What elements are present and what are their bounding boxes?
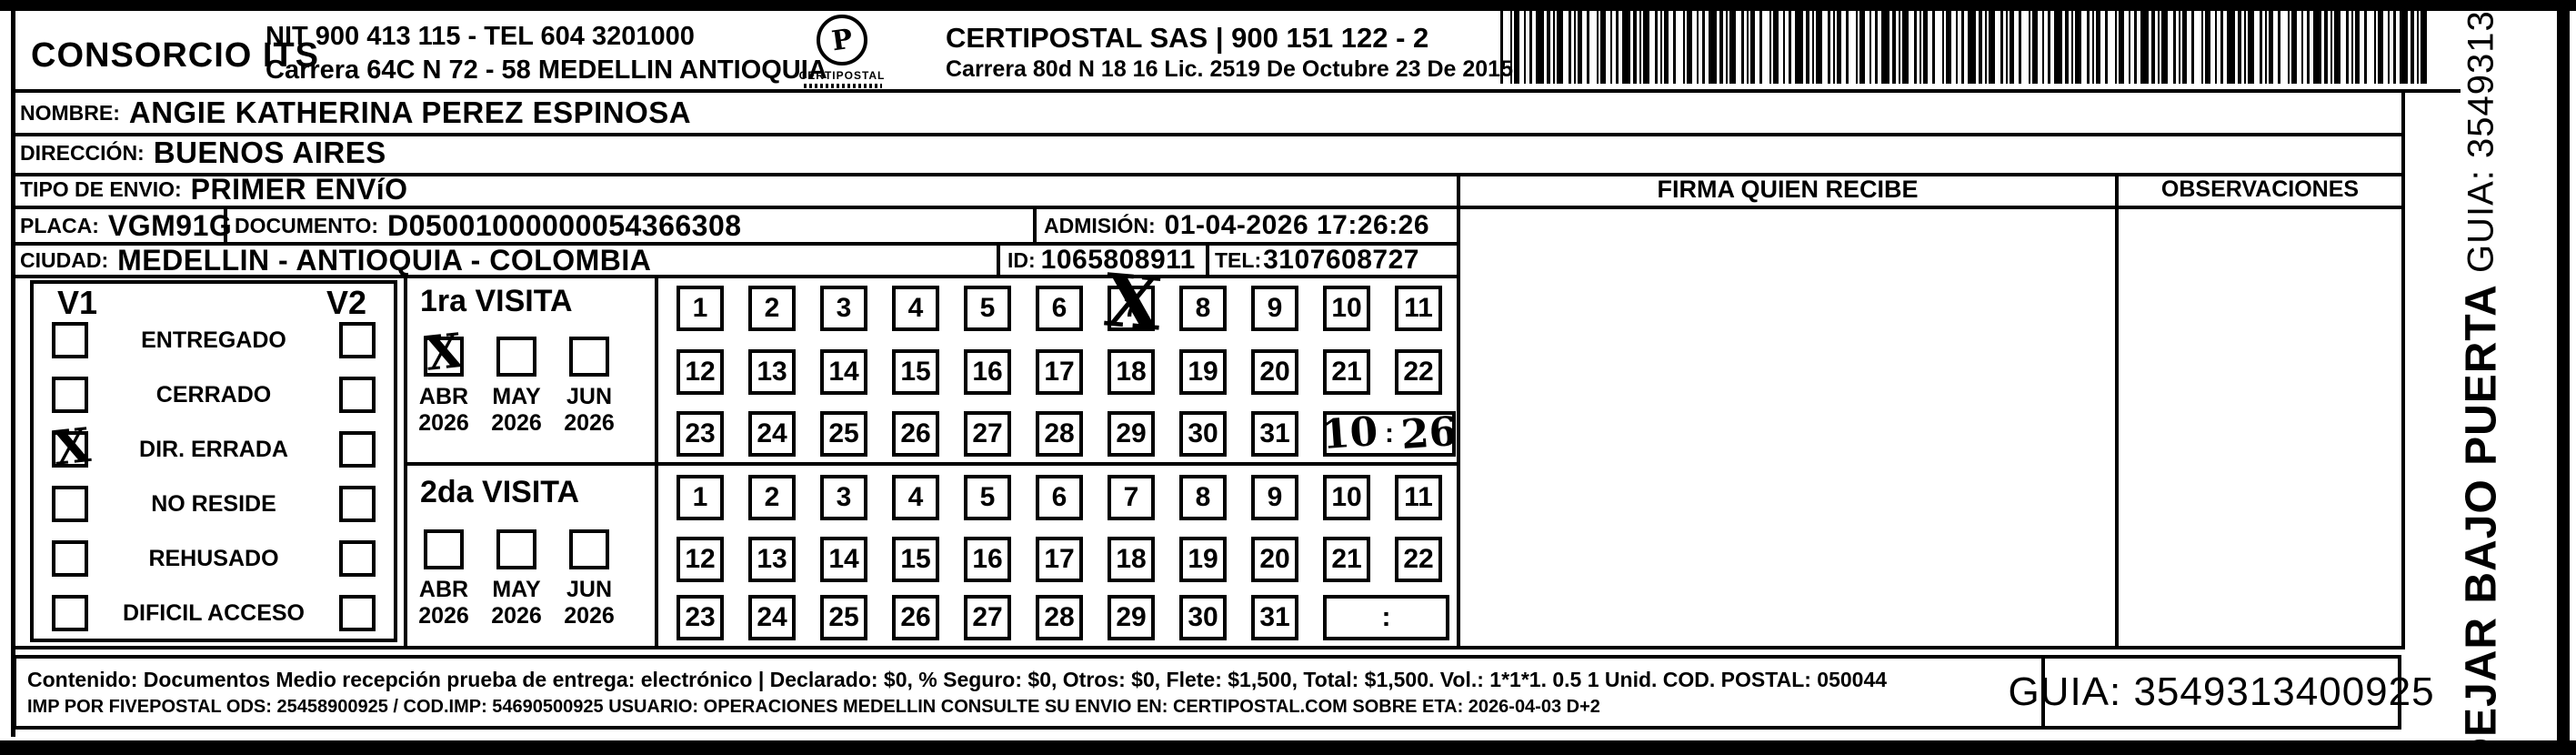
- divider: [1033, 209, 1037, 242]
- month-checkbox: [496, 529, 536, 569]
- day-cell: 30: [1179, 595, 1227, 640]
- time-box: 10:26: [1323, 411, 1456, 457]
- barcode-bar: [2393, 11, 2396, 84]
- day-number: 8: [1196, 482, 1211, 513]
- logo-tagline-illegible: [804, 84, 882, 88]
- barcode-bar: [2421, 11, 2427, 84]
- day-number: 25: [828, 602, 858, 633]
- barcode-bar: [1773, 11, 1779, 84]
- day-number: 19: [1188, 544, 1218, 575]
- month-checkbox: [496, 337, 536, 377]
- ciudad-value: MEDELLIN - ANTIOQUIA - COLOMBIA: [117, 244, 651, 277]
- day-row: 1234567891011: [660, 475, 1457, 520]
- handwritten-x-mark: X: [421, 327, 466, 378]
- nombre-value: ANGIE KATHERINA PEREZ ESPINOSA: [129, 96, 691, 130]
- day-number: 6: [1052, 482, 1067, 513]
- month-option: JUN2026: [560, 529, 618, 629]
- barcode-bar: [1892, 11, 1896, 84]
- day-number: 2: [765, 482, 780, 513]
- barcode-bar: [2355, 11, 2360, 84]
- day-number: 13: [757, 357, 787, 388]
- day-number: 9: [1268, 293, 1283, 324]
- day-cell: 7X: [1108, 286, 1155, 331]
- barcode-bar: [1747, 11, 1749, 84]
- day-number: 23: [685, 418, 715, 449]
- day-number: 26: [900, 602, 930, 633]
- month-option: MAY2026: [487, 337, 546, 437]
- day-cell: 26: [892, 411, 939, 457]
- barcode-bar: [2151, 11, 2155, 84]
- status-panel: V1 V2 ENTREGADOCERRADOXDIR. ERRADANO RES…: [30, 280, 397, 642]
- barcode-bar: [2388, 11, 2390, 84]
- day-number: 14: [828, 544, 858, 575]
- barcode-bar: [1833, 11, 1835, 84]
- day-number: 25: [828, 418, 858, 449]
- day-cell: 25: [820, 595, 867, 640]
- barcode-bar: [2351, 11, 2353, 84]
- day-cell: 10: [1323, 286, 1370, 331]
- day-cell: 18: [1108, 537, 1155, 582]
- field-nombre: NOMBRE: ANGIE KATHERINA PEREZ ESPINOSA: [20, 93, 2393, 133]
- day-cell: 23: [677, 595, 724, 640]
- barcode-bar: [1881, 11, 1889, 84]
- side-guia-text: GUIA: 3549313400925: [2461, 0, 2502, 273]
- day-number: 22: [1403, 357, 1433, 388]
- status-checkbox-v2: [339, 486, 376, 522]
- status-row: REHUSADO: [52, 540, 376, 577]
- day-grid-visit-2: 1234567891011 1213141516171819202122 232…: [660, 466, 1457, 646]
- barcode-bar: [1553, 11, 1555, 84]
- logo-caption: CERTIPOSTAL: [780, 69, 904, 82]
- right-edge-bar: [2557, 0, 2570, 755]
- barcode-bar: [2400, 11, 2408, 84]
- barcode-bar: [1557, 11, 1563, 84]
- barcode-bar: [2334, 11, 2340, 84]
- barcode-bar: [1919, 11, 1921, 84]
- month-option: XABR2026: [415, 337, 473, 437]
- day-cell: 20: [1251, 537, 1298, 582]
- day-cell: 7: [1108, 475, 1155, 520]
- day-cell: 31: [1251, 595, 1298, 640]
- day-cell: 1: [677, 475, 724, 520]
- barcode-bar: [1902, 11, 1909, 84]
- barcode-bar: [2161, 11, 2168, 84]
- barcode-bar: [1828, 11, 1830, 84]
- status-label: DIR. ERRADA: [88, 437, 339, 463]
- month-checkbox: [569, 337, 609, 377]
- day-cell: 15: [892, 537, 939, 582]
- day-number: 17: [1044, 544, 1074, 575]
- documento-value: D05001000000054366308: [387, 209, 742, 243]
- day-number: 1: [693, 293, 708, 324]
- day-number: 5: [980, 482, 996, 513]
- day-number: 18: [1116, 544, 1146, 575]
- partner-address: Carrera 80d N 18 16 Lic. 2519 De Octubre…: [946, 56, 1513, 83]
- month-option: ABR2026: [415, 529, 473, 629]
- barcode-bar: [2048, 11, 2050, 84]
- day-number: 15: [900, 357, 930, 388]
- divider: [2401, 93, 2405, 649]
- company-nit-tel: NIT 900 413 115 - TEL 604 3201000: [266, 20, 827, 54]
- footer-text-block: Contenido: Documentos Medio recepción pr…: [16, 659, 2041, 726]
- day-number: 27: [972, 602, 1002, 633]
- barcode-bar: [2071, 11, 2073, 84]
- left-border: [11, 9, 15, 737]
- barcode-bar: [2330, 11, 2332, 84]
- barcode-bar: [2215, 11, 2217, 84]
- day-cell: 16: [964, 349, 1011, 395]
- barcode-bar: [2374, 11, 2376, 84]
- waybill-scan: CONSORCIO ITS NIT 900 413 115 - TEL 604 …: [0, 0, 2576, 755]
- day-cell: 21: [1323, 349, 1370, 395]
- barcode-bar: [1859, 11, 1865, 84]
- bottom-edge-bar: [0, 740, 2576, 755]
- day-number: 11: [1404, 482, 1433, 513]
- barcode-bar: [1547, 11, 1550, 84]
- barcode-bar: [1514, 11, 1519, 84]
- day-cell: 1: [677, 286, 724, 331]
- time-box: :: [1323, 595, 1449, 640]
- day-cell: 20: [1251, 349, 1298, 395]
- barcode-bar: [2140, 11, 2149, 84]
- firma-header: FIRMA QUIEN RECIBE: [1460, 173, 2115, 206]
- day-cell: 28: [1036, 411, 1083, 457]
- barcode-bar: [2065, 11, 2069, 84]
- v2-header: V2: [326, 284, 366, 322]
- day-cell: 9: [1251, 475, 1298, 520]
- barcode-bar: [1600, 11, 1606, 84]
- month-name: JUN: [566, 384, 612, 410]
- barcode-bar: [1597, 11, 1599, 84]
- day-number: 14: [828, 357, 858, 388]
- field-tel: TEL: 3107608727: [1215, 246, 1455, 275]
- day-cell: 27: [964, 595, 1011, 640]
- barcode-bar: [2324, 11, 2328, 84]
- visit-panel-1: 1ra VISITA XABR2026MAY2026JUN2026: [407, 278, 655, 462]
- barcode-bar: [1510, 11, 1512, 84]
- status-checkbox-v2: [339, 377, 376, 413]
- day-number: 30: [1188, 418, 1218, 449]
- day-number: 23: [685, 602, 715, 633]
- barcode-bar: [1709, 11, 1717, 84]
- barcode-bar: [2105, 11, 2108, 84]
- day-number: 4: [908, 482, 924, 513]
- day-number: 15: [900, 544, 930, 575]
- barcode-bar: [2182, 11, 2187, 84]
- day-cell: 6: [1036, 286, 1083, 331]
- barcode-bar: [1500, 11, 1503, 84]
- barcode-bar: [1806, 11, 1809, 84]
- day-cell: 14: [820, 537, 867, 582]
- field-direccion: DIRECCIÓN: BUENOS AIRES: [20, 133, 2393, 173]
- barcode-bar: [1942, 11, 1944, 84]
- day-number: 30: [1188, 602, 1218, 633]
- status-checkbox-v2: [339, 431, 376, 468]
- barcode-bar: [1985, 11, 1987, 84]
- day-cell: 27: [964, 411, 1011, 457]
- barcode-bar: [1524, 11, 1526, 84]
- day-cell: 5: [964, 286, 1011, 331]
- barcode-bar: [1989, 11, 1995, 84]
- barcode-bar: [1673, 11, 1676, 84]
- barcode-bar: [1569, 11, 1571, 84]
- barcode-bar: [2032, 11, 2038, 84]
- status-rows: ENTREGADOCERRADOXDIR. ERRADANO RESIDEREH…: [34, 322, 394, 631]
- day-cell: 2: [748, 475, 796, 520]
- barcode-bar: [1529, 11, 1532, 84]
- field-ciudad: CIUDAD: MEDELLIN - ANTIOQUIA - COLOMBIA: [20, 246, 993, 275]
- month-name: ABR: [419, 577, 468, 603]
- barcode-bar: [1622, 11, 1630, 84]
- status-checkbox-v1: [52, 595, 88, 631]
- day-number: 9: [1268, 482, 1283, 513]
- tipo-envio-label: TIPO DE ENVIO:: [20, 177, 182, 202]
- barcode-bar: [2087, 11, 2090, 84]
- visit-months: ABR2026MAY2026JUN2026: [415, 529, 618, 629]
- status-row: XDIR. ERRADA: [52, 431, 376, 468]
- barcode-bar: [1750, 11, 1755, 84]
- barcode-bar: [1795, 11, 1803, 84]
- day-number: 31: [1259, 602, 1289, 633]
- day-number: 11: [1404, 293, 1433, 324]
- divider: [997, 246, 1000, 275]
- barcode-bar: [2313, 11, 2321, 84]
- day-cell: 8: [1179, 286, 1227, 331]
- barcode-bar: [1687, 11, 1692, 84]
- day-number: 7: [1124, 293, 1139, 324]
- day-number: 16: [972, 357, 1002, 388]
- barcode-bar: [2378, 11, 2383, 84]
- day-number: 1: [693, 482, 708, 513]
- time-colon: :: [1382, 602, 1391, 633]
- barcode-bar: [1946, 11, 1951, 84]
- time-colon: :: [1385, 418, 1394, 449]
- barcode-bar: [2029, 11, 2030, 84]
- barcode-bar: [1643, 11, 1649, 84]
- month-checkbox: [424, 529, 464, 569]
- company-address: Carrera 64C N 72 - 58 MEDELLIN ANTIOQUIA: [266, 54, 827, 87]
- day-cell: 9: [1251, 286, 1298, 331]
- month-name: ABR: [419, 384, 468, 410]
- barcode-bar: [2075, 11, 2081, 84]
- day-number: 28: [1044, 602, 1074, 633]
- id-label: ID:: [1007, 248, 1036, 273]
- tel-label: TEL:: [1215, 248, 1261, 273]
- day-cell: 13: [748, 537, 796, 582]
- day-cell: 17: [1036, 349, 1083, 395]
- barcode-bar: [1697, 11, 1699, 84]
- ciudad-label: CIUDAD:: [20, 248, 108, 273]
- side-warning-text: NO DEJAR BAJO PUERTA: [2457, 284, 2507, 755]
- barcode-bar: [1837, 11, 1841, 84]
- barcode-bar: [1719, 11, 1723, 84]
- day-cell: 29: [1108, 595, 1155, 640]
- footer-content-line: Contenido: Documentos Medio recepción pr…: [27, 668, 2030, 692]
- status-label: CERRADO: [88, 382, 339, 408]
- barcode-bar: [1961, 11, 1964, 84]
- status-row: NO RESIDE: [52, 486, 376, 522]
- barcode-bar: [2000, 11, 2003, 84]
- status-label: DIFICIL ACCESO: [88, 600, 339, 627]
- day-number: 17: [1044, 357, 1074, 388]
- month-year: 2026: [564, 410, 615, 437]
- day-number: 16: [972, 544, 1002, 575]
- day-number: 31: [1259, 418, 1289, 449]
- day-grid-visit-1: 1234567X891011 1213141516171819202122 23…: [660, 278, 1457, 462]
- barcode-bar: [2134, 11, 2137, 84]
- barcode-bar: [2173, 11, 2176, 84]
- barcode-bar: [1639, 11, 1641, 84]
- id-value: 1065808911: [1041, 245, 1196, 276]
- day-cell: 12: [677, 537, 724, 582]
- month-name: MAY: [492, 577, 540, 603]
- day-number: 6: [1052, 293, 1067, 324]
- side-note: NO DEJAR BAJO PUERTA GUIA: 3549313400925: [2408, 84, 2555, 649]
- day-cell: 3: [820, 475, 867, 520]
- barcode-bar: [1812, 11, 1814, 84]
- month-name: JUN: [566, 577, 612, 603]
- month-year: 2026: [418, 603, 469, 629]
- barcode-bar: [2260, 11, 2262, 84]
- day-cell: 3: [820, 286, 867, 331]
- field-placa: PLACA: VGM91G: [20, 209, 222, 242]
- visit-title: 1ra VISITA: [420, 284, 573, 319]
- day-cell: 31: [1251, 411, 1298, 457]
- status-checkbox-v1: [52, 540, 88, 577]
- barcode-bar: [2042, 11, 2044, 84]
- day-row: 232425262728293031:: [660, 595, 1457, 640]
- barcode-bar: [1616, 11, 1619, 84]
- barcode-bar: [1932, 11, 1935, 84]
- barcode-bar: [1923, 11, 1928, 84]
- status-checkbox-v2: [339, 595, 376, 631]
- day-cell: 21: [1323, 537, 1370, 582]
- barcode-bar: [2238, 11, 2241, 84]
- day-cell: 25: [820, 411, 867, 457]
- barcode-bar: [2115, 11, 2117, 84]
- seal-glyph: P: [829, 23, 854, 57]
- day-row: 1213141516171819202122: [660, 349, 1457, 395]
- barcode-bar: [2265, 11, 2267, 84]
- status-checkbox-v2: [339, 540, 376, 577]
- day-cell: 24: [748, 595, 796, 640]
- barcode-bar: [1856, 11, 1858, 84]
- barcode-bar: [2278, 11, 2280, 84]
- divider: [655, 278, 658, 646]
- status-label: NO RESIDE: [88, 491, 339, 518]
- barcode-bar: [1610, 11, 1612, 84]
- barcode-bar: [1741, 11, 1744, 84]
- partner-name: CERTIPOSTAL SAS | 900 151 122 - 2: [946, 22, 1428, 55]
- barcode-bar: [2119, 11, 2124, 84]
- barcode-bar: [2019, 11, 2021, 84]
- day-cell: 28: [1036, 595, 1083, 640]
- day-number: 3: [837, 293, 852, 324]
- barcode-bar: [2096, 11, 2100, 84]
- status-row: DIFICIL ACCESO: [52, 595, 376, 631]
- barcode-bar: [2248, 11, 2254, 84]
- day-cell: 22: [1395, 349, 1442, 395]
- day-number: 22: [1403, 544, 1433, 575]
- month-option: JUN2026: [560, 337, 618, 437]
- day-number: 10: [1331, 293, 1361, 324]
- divider: [1457, 173, 1460, 649]
- day-cell: 14: [820, 349, 867, 395]
- status-checkbox-v1: [52, 486, 88, 522]
- day-cell: 30: [1179, 411, 1227, 457]
- admision-label: ADMISIÓN:: [1044, 214, 1156, 238]
- barcode-bar: [2129, 11, 2130, 84]
- barcode-bar: [1587, 11, 1589, 84]
- day-number: 24: [757, 602, 787, 633]
- day-number: 21: [1331, 544, 1361, 575]
- divider: [2115, 173, 2119, 649]
- day-number: 21: [1331, 357, 1361, 388]
- day-cell: 19: [1179, 537, 1227, 582]
- barcode-bar: [2201, 11, 2203, 84]
- barcode-bar: [1759, 11, 1762, 84]
- day-number: 19: [1188, 357, 1218, 388]
- barcode-bar: [2054, 11, 2062, 84]
- v1-header: V1: [57, 284, 97, 322]
- day-number: 3: [837, 482, 852, 513]
- barcode-bar: [1899, 11, 1900, 84]
- month-checkbox: X: [424, 337, 464, 377]
- barcode-bar: [2158, 11, 2160, 84]
- barcode-bar: [1968, 11, 1976, 84]
- company-contact-block: NIT 900 413 115 - TEL 604 3201000 Carrer…: [266, 20, 827, 87]
- barcode-icon: [1500, 11, 2451, 84]
- footer-strip: Contenido: Documentos Medio recepción pr…: [13, 655, 2401, 730]
- month-option: MAY2026: [487, 529, 546, 629]
- barcode-bar: [2269, 11, 2273, 84]
- top-edge-bar: [0, 0, 2576, 11]
- barcode-bar: [2006, 11, 2008, 84]
- barcode-bar: [2220, 11, 2223, 84]
- day-cell: 11: [1395, 286, 1442, 331]
- handwritten-time-hour: 10: [1320, 412, 1378, 456]
- placa-label: PLACA:: [20, 214, 99, 238]
- day-number: 4: [908, 293, 924, 324]
- status-label: ENTREGADO: [88, 327, 339, 354]
- barcode-bar: [1769, 11, 1771, 84]
- status-checkbox-v1: [52, 377, 88, 413]
- barcode-bar: [2191, 11, 2194, 84]
- status-checkbox-v1: X: [52, 431, 88, 468]
- status-row: ENTREGADO: [52, 322, 376, 358]
- day-cell: 11: [1395, 475, 1442, 520]
- barcode-bar: [1633, 11, 1637, 84]
- barcode-bar: [2291, 11, 2297, 84]
- day-cell: 4: [892, 475, 939, 520]
- field-tipo-envio: TIPO DE ENVIO: PRIMER ENVíO: [20, 173, 1448, 206]
- day-cell: 26: [892, 595, 939, 640]
- barcode-bar: [1783, 11, 1785, 84]
- divider: [1206, 246, 1209, 275]
- handwritten-x-mark: X: [49, 422, 94, 473]
- barcode-bar: [2010, 11, 2014, 84]
- field-id: ID: 1065808911: [1007, 246, 1204, 275]
- day-number: 24: [757, 418, 787, 449]
- visit-panel-2: 2da VISITA ABR2026MAY2026JUN2026: [407, 466, 655, 646]
- day-number: 7: [1124, 482, 1139, 513]
- field-documento: DOCUMENTO: D05001000000054366308: [235, 209, 1031, 242]
- visit-months: XABR2026MAY2026JUN2026: [415, 337, 618, 437]
- barcode-bar: [1660, 11, 1662, 84]
- barcode-bar: [2346, 11, 2349, 84]
- month-checkbox: [569, 529, 609, 569]
- day-cell: 22: [1395, 537, 1442, 582]
